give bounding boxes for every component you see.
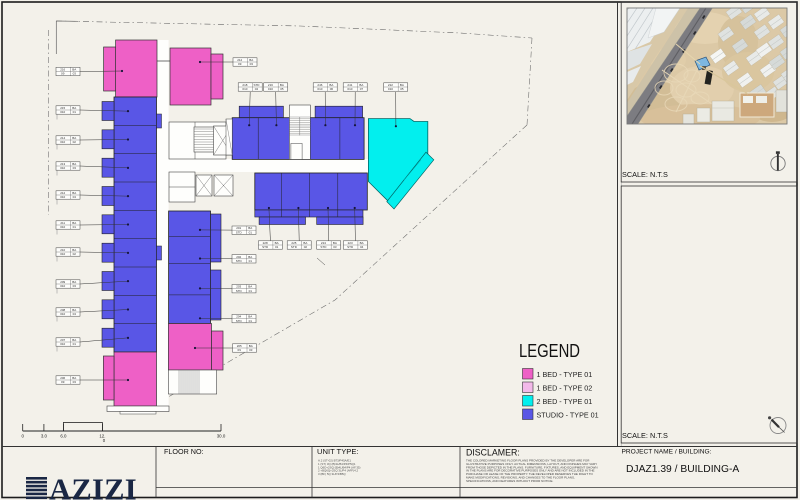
svg-text:01: 01 [73,110,77,114]
svg-text:09: 09 [238,62,242,66]
svg-text:03: 03 [73,166,77,170]
svg-text:02: 02 [73,140,77,144]
svg-text:STD: STD [320,245,327,249]
svg-text:03: 03 [250,62,254,66]
svg-text:01: 01 [73,342,77,346]
svg-text:02: 02 [304,245,308,249]
svg-text:2 BED - TYPE 01: 2 BED - TYPE 01 [537,397,593,406]
svg-text:06: 06 [330,87,334,91]
svg-text:STD: STD [236,289,243,293]
svg-text:FLOOR NO:: FLOOR NO: [164,447,204,456]
svg-text:09: 09 [238,348,242,352]
svg-text:03: 03 [73,284,77,288]
svg-text:03: 03 [249,348,253,352]
svg-text:09: 09 [61,380,65,384]
svg-text:SCALE: N.T.S: SCALE: N.T.S [622,170,668,179]
svg-text:STD: STD [291,245,298,249]
svg-text:010: 010 [60,342,65,346]
svg-text:07: 07 [360,87,364,91]
svg-text:STD: STD [236,230,243,234]
svg-text:6.0: 6.0 [60,434,67,439]
svg-text:STD: STD [236,259,243,263]
svg-text:DISCLAMER:: DISCLAMER: [466,448,520,458]
svg-text:010: 010 [347,87,352,91]
svg-text:010: 010 [60,110,65,114]
svg-text:STUDIO - TYPE 01: STUDIO - TYPE 01 [537,410,599,419]
svg-text:01: 01 [275,245,279,249]
svg-text:010: 010 [60,312,65,316]
svg-text:010: 010 [317,87,322,91]
svg-text:STD: STD [347,245,354,249]
svg-text:1 BED - TYPE 02: 1 BED - TYPE 02 [537,383,593,392]
svg-text:010: 010 [60,140,65,144]
svg-text:01: 01 [249,230,253,234]
svg-text:010: 010 [268,87,273,91]
svg-text:05: 05 [400,87,404,91]
svg-text:010: 010 [60,252,65,256]
svg-text:SPECIFICATIONS, AND FEATURES W: SPECIFICATIONS, AND FEATURES WITHOUT PRI… [466,479,554,483]
svg-text:AZIZI: AZIZI [49,473,137,500]
svg-text:STD: STD [262,245,269,249]
svg-text:010: 010 [60,225,65,229]
svg-text:01: 01 [73,225,77,229]
svg-text:010: 010 [60,284,65,288]
svg-text:010: 010 [242,87,247,91]
svg-text:04: 04 [73,195,77,199]
svg-text:LEGEND: LEGEND [519,340,580,361]
svg-text:02: 02 [73,252,77,256]
svg-text:04: 04 [73,312,77,316]
svg-text:3.0: 3.0 [41,434,48,439]
svg-text:SCALE: N.T.S: SCALE: N.T.S [622,431,668,440]
svg-text:05: 05 [280,87,284,91]
svg-text:04: 04 [255,87,259,91]
svg-text:010: 010 [60,166,65,170]
svg-text:STD: STD [236,319,243,323]
svg-text:010: 010 [60,195,65,199]
svg-text:09: 09 [61,72,65,76]
svg-text:04: 04 [360,245,364,249]
svg-text:3 (BF) 5Q 3L/P4/B5Q: 3 (BF) 5Q 3L/P4/B5Q [318,472,346,476]
svg-text:03: 03 [73,72,77,76]
svg-text:01: 01 [249,319,253,323]
svg-text:01: 01 [249,289,253,293]
svg-text:UNIT TYPE:: UNIT TYPE: [317,447,359,456]
svg-text:30.0: 30.0 [217,434,226,439]
svg-text:PROJECT NAME / BUILDING:: PROJECT NAME / BUILDING: [622,449,712,456]
svg-text:03: 03 [333,245,337,249]
svg-text:010: 010 [388,87,393,91]
svg-text:01: 01 [249,259,253,263]
svg-text:1 BED - TYPE 01: 1 BED - TYPE 01 [537,370,593,379]
svg-text:DJAZ1.39 / BUILDING-A: DJAZ1.39 / BUILDING-A [626,464,739,475]
svg-text:03: 03 [73,380,77,384]
